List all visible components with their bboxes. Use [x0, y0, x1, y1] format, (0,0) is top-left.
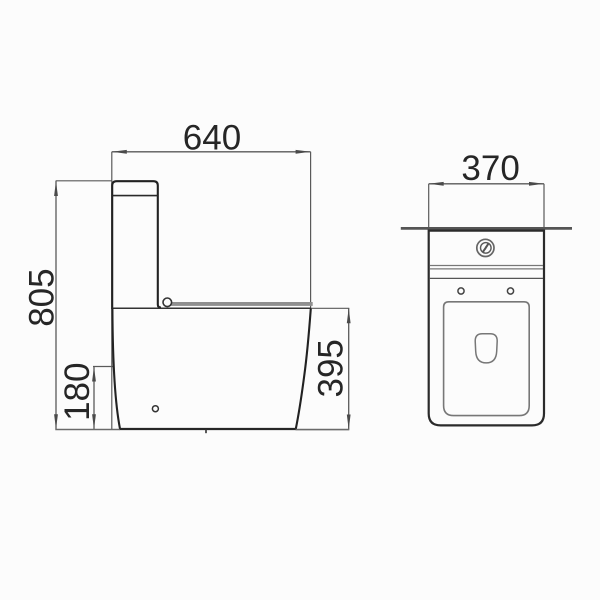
svg-text:180: 180 — [58, 362, 97, 420]
svg-text:370: 370 — [461, 149, 519, 188]
svg-text:395: 395 — [312, 339, 351, 397]
